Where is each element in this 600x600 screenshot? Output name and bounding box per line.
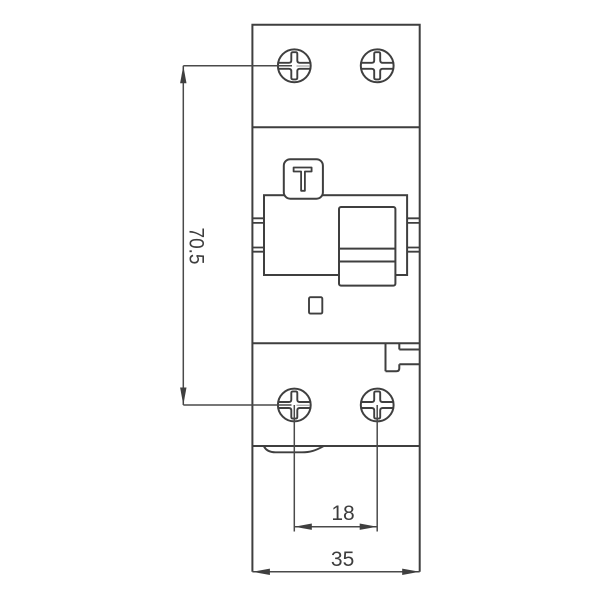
- svg-text:18: 18: [331, 502, 354, 525]
- svg-text:35: 35: [331, 548, 354, 571]
- svg-text:70.5: 70.5: [185, 228, 208, 265]
